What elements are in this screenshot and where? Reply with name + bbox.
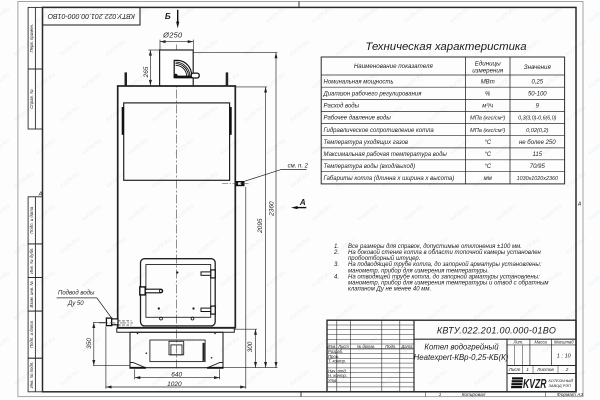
svg-text:2360: 2360 — [268, 201, 275, 217]
svg-text:KVZR: KVZR — [523, 377, 547, 391]
svg-text:ЗАВОД РЭП: ЗАВОД РЭП — [549, 383, 572, 388]
svg-text:Лист: Лист — [508, 367, 521, 372]
svg-text:Взам. инв. №: Взам. инв. № — [29, 281, 34, 308]
svg-text:2.: 2. — [333, 250, 339, 256]
svg-text:МПа (кгс/см²): МПа (кгс/см²) — [470, 116, 505, 122]
svg-text:Гидравлическое сопротивление к: Гидравлическое сопротивление котла — [324, 128, 435, 134]
svg-text:А: А — [577, 202, 582, 208]
svg-text:Дата: Дата — [400, 344, 413, 349]
svg-text:манометр, прибор для измерения: манометр, прибор для измерения температу… — [348, 268, 489, 274]
svg-text:Единицы: Единицы — [475, 61, 501, 68]
svg-text:На подводящей трубе котла, до: На подводящей трубе котла, до запорной а… — [348, 261, 542, 268]
svg-text:Подп. и дата: Подп. и дата — [29, 321, 34, 349]
svg-text:МВт: МВт — [481, 79, 495, 85]
svg-text:Копировал: Копировал — [462, 392, 486, 398]
svg-text:Heatexpert-КВр-0,25-КБ(К): Heatexpert-КВр-0,25-КБ(К) — [414, 353, 509, 362]
svg-text:Инв. № подл.: Инв. № подл. — [29, 362, 34, 389]
svg-text:Ø250: Ø250 — [162, 31, 183, 40]
svg-text:КВТУ.022.201.00.000-01ВО: КВТУ.022.201.00.000-01ВО — [437, 326, 556, 336]
svg-text:Значения: Значения — [524, 64, 552, 71]
svg-text:Т. контр.: Т. контр. — [328, 359, 346, 364]
svg-text:°С: °С — [484, 140, 491, 146]
svg-text:Диапазон рабочего регулировани: Диапазон рабочего регулирования — [323, 92, 423, 98]
svg-text:3.: 3. — [334, 262, 339, 268]
svg-text:Лит.: Лит. — [512, 340, 523, 345]
svg-text:мм: мм — [484, 176, 492, 182]
svg-text:Подп. и дата: Подп. и дата — [29, 206, 34, 234]
svg-text:см. п. 2: см. п. 2 — [288, 164, 309, 170]
svg-text:Формат А3: Формат А3 — [557, 392, 584, 398]
svg-text:пробоотборный штуцер.: пробоотборный штуцер. — [348, 255, 420, 262]
svg-text:Подвод воды: Подвод воды — [58, 291, 95, 297]
svg-text:300: 300 — [247, 341, 254, 352]
svg-text:°С: °С — [484, 152, 491, 158]
svg-text:манометр, прибор для измерения: манометр, прибор для измерения температу… — [348, 281, 549, 287]
svg-text:2: 2 — [565, 367, 569, 372]
svg-text:Справ. №: Справ. № — [29, 89, 34, 109]
svg-text:№ докум.: № докум. — [357, 344, 375, 349]
svg-text:1020: 1020 — [167, 381, 182, 388]
svg-text:Габариты котла (длинна х ширин: Габариты котла (длинна х ширина х высота… — [324, 176, 455, 182]
svg-text:МПа (кгс/см²): МПа (кгс/см²) — [470, 128, 505, 134]
svg-text:Температура уходящих газов: Температура уходящих газов — [324, 140, 409, 146]
svg-text:м³/ч: м³/ч — [482, 104, 493, 110]
svg-text:Расход воды: Расход воды — [324, 104, 360, 110]
svg-text:Рабочее давление воды: Рабочее давление воды — [324, 116, 392, 122]
svg-text:Номинальная мощность: Номинальная мощность — [324, 79, 394, 85]
svg-text:1030х1020х2360: 1030х1020х2360 — [517, 176, 558, 182]
svg-text:0,25: 0,25 — [531, 79, 543, 85]
svg-text:°С: °С — [484, 164, 491, 170]
svg-text:0,02(0,2): 0,02(0,2) — [526, 128, 549, 134]
svg-text:Подп.: Подп. — [385, 344, 396, 349]
svg-text:1: 1 — [439, 392, 442, 397]
svg-text:50-100: 50-100 — [528, 92, 547, 98]
svg-text:Утв.: Утв. — [328, 378, 338, 383]
svg-text:Перв. примен.: Перв. примен. — [29, 24, 34, 53]
svg-text:Масштаб: Масштаб — [554, 340, 574, 345]
svg-text:Котел водогрейный: Котел водогрейный — [424, 342, 499, 351]
svg-text:На боковой стенке котла в обла: На боковой стенке котла в области топочн… — [348, 249, 542, 256]
svg-text:0,3(3,0)-0,6(6,0): 0,3(3,0)-0,6(6,0) — [518, 116, 557, 122]
svg-text:Инв. № дубл.: Инв. № дубл. — [29, 247, 34, 273]
svg-text:Все размеры для справок, допус: Все размеры для справок, допустимые откл… — [348, 244, 522, 250]
svg-text:115: 115 — [533, 152, 543, 158]
svg-text:1.: 1. — [334, 244, 339, 250]
svg-text:Техническая характеристика: Техническая характеристика — [365, 41, 526, 53]
svg-text:4.: 4. — [334, 274, 339, 280]
svg-text:Б: Б — [165, 12, 171, 21]
svg-text:На отводящей трубе котла, до з: На отводящей трубе котла, до запорной ар… — [348, 273, 540, 280]
svg-text:70/95: 70/95 — [530, 164, 546, 170]
svg-text:А: А — [299, 198, 306, 207]
svg-text:Масса: Масса — [535, 340, 548, 345]
svg-text:2095: 2095 — [257, 218, 264, 234]
svg-text:измерения: измерения — [472, 68, 504, 75]
svg-text:Температура воды (вход/выход): Температура воды (вход/выход) — [324, 164, 416, 170]
svg-text:Ду 50: Ду 50 — [67, 301, 84, 307]
svg-text:350: 350 — [86, 338, 93, 349]
svg-text:клапаном Ду не менее 40 мм.: клапаном Ду не менее 40 мм. — [348, 287, 431, 293]
svg-text:Максимальная рабочая температу: Максимальная рабочая температура воды — [324, 152, 448, 158]
svg-text:265: 265 — [143, 66, 150, 78]
svg-text:Наименование показателя: Наименование показателя — [354, 63, 434, 70]
svg-text:%: % — [485, 92, 491, 98]
svg-text:Листов: Листов — [536, 367, 554, 372]
svg-text:640: 640 — [171, 371, 182, 378]
svg-text:1 : 10: 1 : 10 — [557, 353, 572, 359]
svg-text:не более 250: не более 250 — [519, 140, 556, 146]
svg-text:КВТУ.022.201.00.000-01ВО: КВТУ.022.201.00.000-01ВО — [47, 12, 135, 19]
